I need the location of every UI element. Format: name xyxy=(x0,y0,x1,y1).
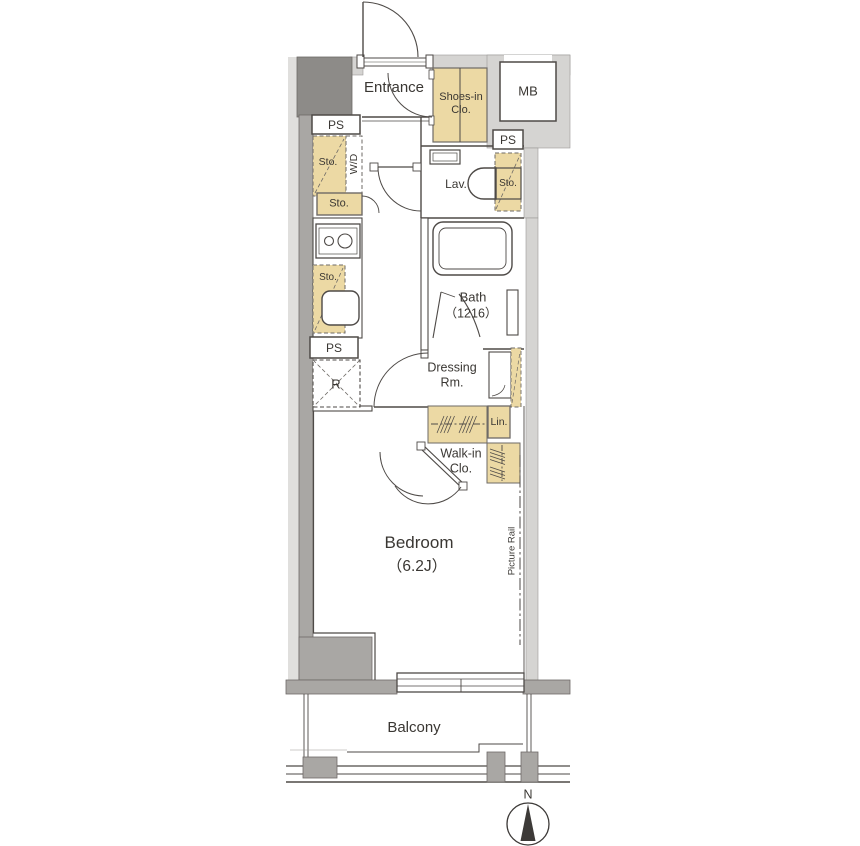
bath-label: Bath xyxy=(460,289,487,304)
shoes-in-closet-label: Shoes-in Clo. xyxy=(439,91,482,117)
bathtub xyxy=(433,222,512,275)
entrance-label: Entrance xyxy=(364,79,424,97)
walk-in-closet-label: Walk-in Clo. xyxy=(440,446,481,476)
bath-size-label: （1216） xyxy=(445,307,498,322)
bath-door-leaf xyxy=(433,292,441,338)
balcony-window xyxy=(397,673,524,692)
compass xyxy=(507,803,549,845)
balcony-post xyxy=(303,757,337,778)
floor-plan: Entrance Shoes-in Clo. MB PS Sto. W/D St… xyxy=(0,0,860,846)
bedroom-label: Bedroom xyxy=(385,533,454,553)
balcony-left-partition xyxy=(304,694,308,766)
storage-hall-door-arc xyxy=(362,196,379,213)
balcony-post xyxy=(521,752,538,782)
storage-wd-label: Sto. xyxy=(319,156,338,168)
refrigerator-label: R xyxy=(331,376,340,391)
wic-door-swing-arc-2 xyxy=(395,486,461,504)
ps-top-label: PS xyxy=(328,118,344,132)
lavatory-label: Lav. xyxy=(445,177,467,191)
dressing-room xyxy=(489,348,521,407)
hall-door-swing-arc xyxy=(378,167,421,211)
balcony-label: Balcony xyxy=(387,719,440,737)
storage-lavatory-label: Sto. xyxy=(499,178,517,190)
balcony-structure xyxy=(286,694,570,782)
bedroom-door-swing-arc xyxy=(374,353,428,407)
balcony-floor-edge xyxy=(347,744,523,752)
dressing-room-label: Dressing Rm. xyxy=(427,360,476,390)
toilet xyxy=(468,168,496,199)
ps-right-label: PS xyxy=(500,133,516,147)
meter-box-label: MB xyxy=(518,83,538,98)
compass-north-label: N xyxy=(523,788,532,803)
bedroom-door xyxy=(374,353,428,407)
bedroom-size-label: （6.2J） xyxy=(387,558,447,576)
picture-rail-label: Picture Rail xyxy=(507,527,518,576)
kitchen-sink xyxy=(322,291,359,325)
linen-label: Lin. xyxy=(491,416,508,428)
storage-kitchen-label: Sto. xyxy=(319,272,337,284)
wic-door-swing-arc-1 xyxy=(380,452,423,496)
washer-pan xyxy=(489,352,511,398)
bath-counter xyxy=(507,290,518,335)
ps-bottom-label: PS xyxy=(326,341,342,355)
balcony-right-partition xyxy=(527,694,531,752)
balcony-post xyxy=(487,752,505,782)
lav-shelf xyxy=(430,150,460,164)
entrance-door-swing-arc xyxy=(363,2,418,57)
entrance-door xyxy=(357,2,433,68)
storage-hall-label: Sto. xyxy=(329,198,349,211)
washer-dryer-label: W/D xyxy=(348,154,360,174)
hall-door xyxy=(370,163,421,211)
